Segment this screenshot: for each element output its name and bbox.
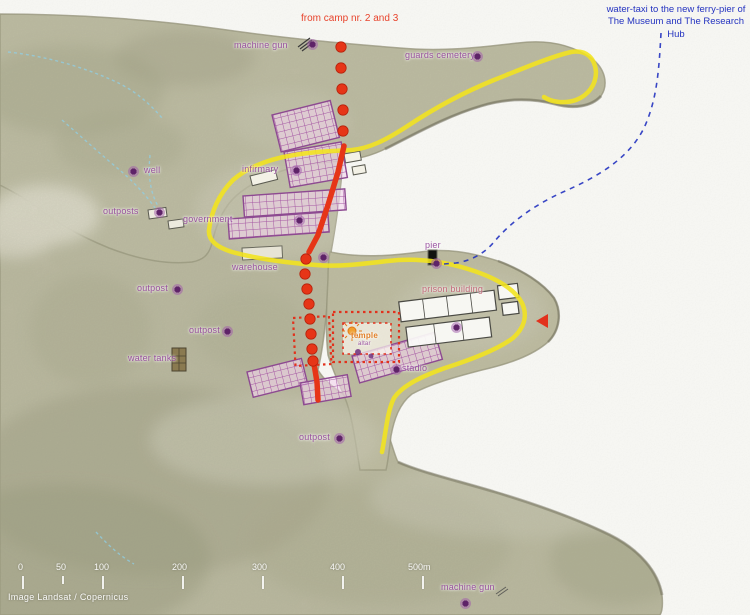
map-marker-dot-stadio (391, 364, 402, 375)
map-marker-dot-guards-cemetery (472, 51, 483, 62)
map-marker-dot-machine-gun-south (460, 598, 471, 609)
map-marker-dot-outposts (154, 207, 165, 218)
map-marker-dot-pier (431, 258, 442, 269)
map-label-machine-gun-south: machine gun (441, 582, 495, 592)
map-marker-dot-well (128, 166, 139, 177)
map-marker-dot-warehouse (318, 252, 329, 263)
satellite-map-image (0, 0, 750, 615)
water-taxi-label-line1: water-taxi to the new ferry-pier of (607, 4, 746, 15)
map-label-well: well (144, 165, 160, 175)
map-marker-dot-government (294, 215, 305, 226)
water-taxi-label-line2: The Museum and The Research Hub (608, 16, 744, 39)
map-label-government: government (183, 214, 233, 224)
map-label-temple: temple (351, 331, 378, 340)
map-label-outpost-mid: outpost (189, 325, 220, 335)
map-label-water-tanks: water tanks (128, 353, 176, 363)
map-label-outpost-south: outpost (299, 432, 330, 442)
map-canvas: from camp nr. 2 and 3 water-taxi to the … (0, 0, 750, 615)
map-marker-dot-infirmary (291, 165, 302, 176)
map-label-pier: pier (425, 240, 441, 250)
map-label-stadio: stadio (402, 363, 427, 373)
map-marker-dot-prison-building (451, 322, 462, 333)
map-marker-dot-machine-gun-north (307, 39, 318, 50)
map-label-infirmary: infirmary (242, 164, 278, 174)
temple-marker-dot (369, 354, 374, 359)
map-label-temple-altar: altar (358, 341, 371, 347)
attribution: Image Landsat / Copernicus (8, 592, 128, 602)
from-camp-route-label: from camp nr. 2 and 3 (301, 13, 398, 24)
map-label-guards-cemetery: guards cemetery (405, 50, 475, 60)
map-marker-dot-outpost-west (172, 284, 183, 295)
map-marker-dot-outpost-south (334, 433, 345, 444)
map-label-machine-gun-north: machine gun (234, 40, 288, 50)
water-taxi-route-label: water-taxi to the new ferry-pier of The … (606, 4, 746, 41)
map-label-outposts: outposts (103, 206, 139, 216)
temple-marker-dot (355, 349, 361, 355)
map-label-outpost-west: outpost (137, 283, 168, 293)
map-label-warehouse: warehouse (232, 262, 278, 272)
map-label-prison-building: prison building (422, 284, 483, 294)
map-marker-dot-outpost-mid (222, 326, 233, 337)
